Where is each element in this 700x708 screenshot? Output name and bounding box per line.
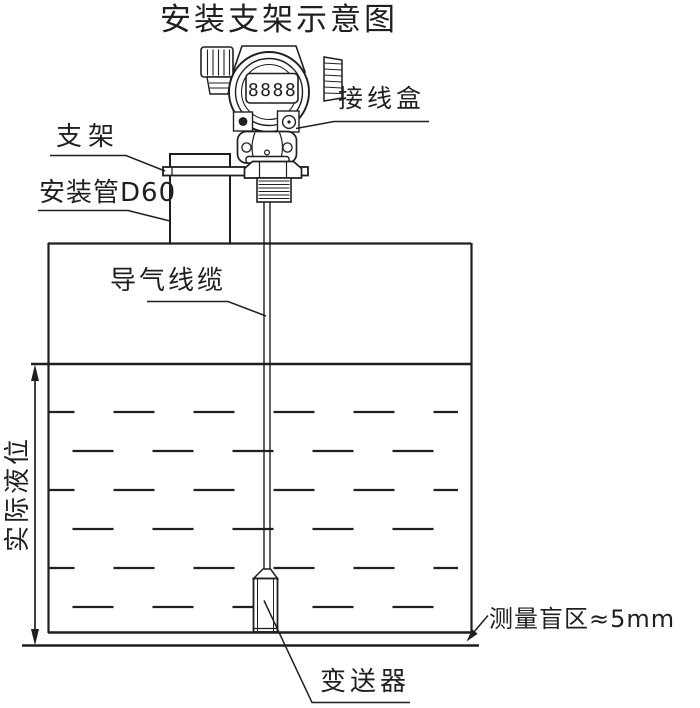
leader-air-cable	[147, 302, 266, 317]
label-transmitter: 变送器	[320, 668, 410, 697]
label-bracket: 支架	[56, 123, 120, 152]
label-mounting-pipe: 安装管D60	[39, 179, 176, 208]
blind-zone-arrowhead	[467, 629, 478, 641]
leader-mounting-pipe	[38, 211, 170, 222]
label-actual-level: 实际液位	[4, 434, 34, 554]
label-blind-zone: 测量盲区≈5mm	[489, 606, 675, 633]
display-digits: 8888	[248, 80, 297, 101]
label-junction-box: 接线盒	[338, 85, 425, 113]
air-guide-cable	[264, 202, 270, 569]
leader-bracket	[50, 156, 165, 172]
process-connection	[238, 132, 297, 164]
page-title: 安装支架示意图	[160, 3, 398, 38]
thread-fitting	[257, 178, 291, 202]
installation-diagram: 8888	[0, 0, 700, 708]
tank-bottom	[22, 633, 479, 646]
cable-gland-icon	[201, 47, 233, 94]
hex-nut	[245, 162, 302, 179]
leader-junction-box	[296, 122, 429, 129]
label-air-cable: 导气线缆	[110, 267, 226, 296]
